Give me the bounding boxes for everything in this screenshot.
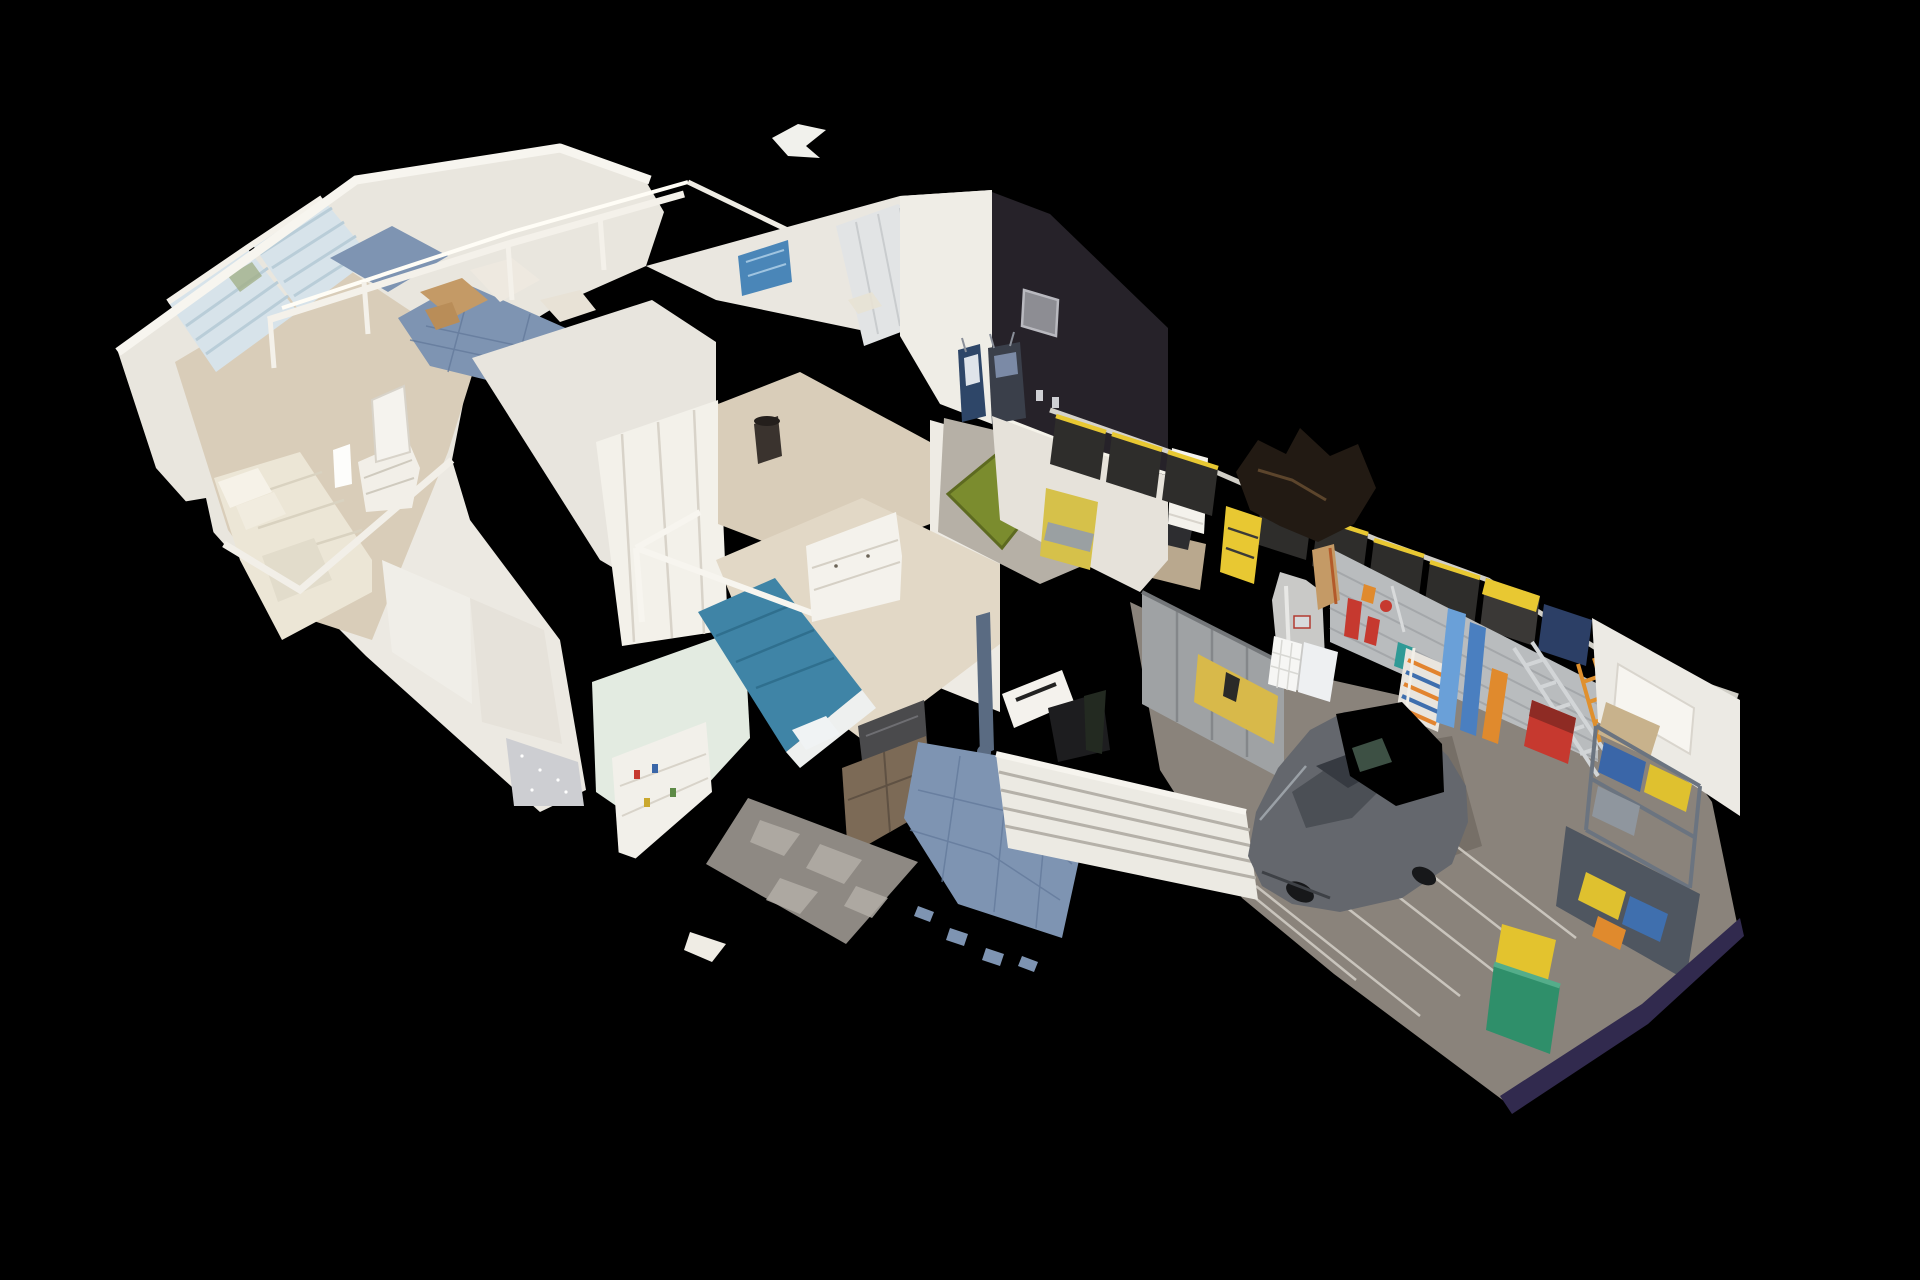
- heater-label: [1294, 616, 1310, 628]
- laundry-hamper: [1268, 636, 1302, 692]
- dollhouse-scene: [0, 0, 1920, 1280]
- golf-bag-navy-panel: [964, 354, 980, 386]
- dollhouse-viewer[interactable]: [0, 0, 1920, 1280]
- golf-bag-black-panel: [994, 352, 1018, 378]
- arched-niche: [372, 386, 410, 462]
- trash-can-lid: [754, 416, 780, 426]
- outlet-2: [1052, 397, 1059, 408]
- tool-red-3: [1380, 600, 1392, 612]
- outlet-1: [1036, 390, 1043, 401]
- air-purifier: [333, 444, 352, 488]
